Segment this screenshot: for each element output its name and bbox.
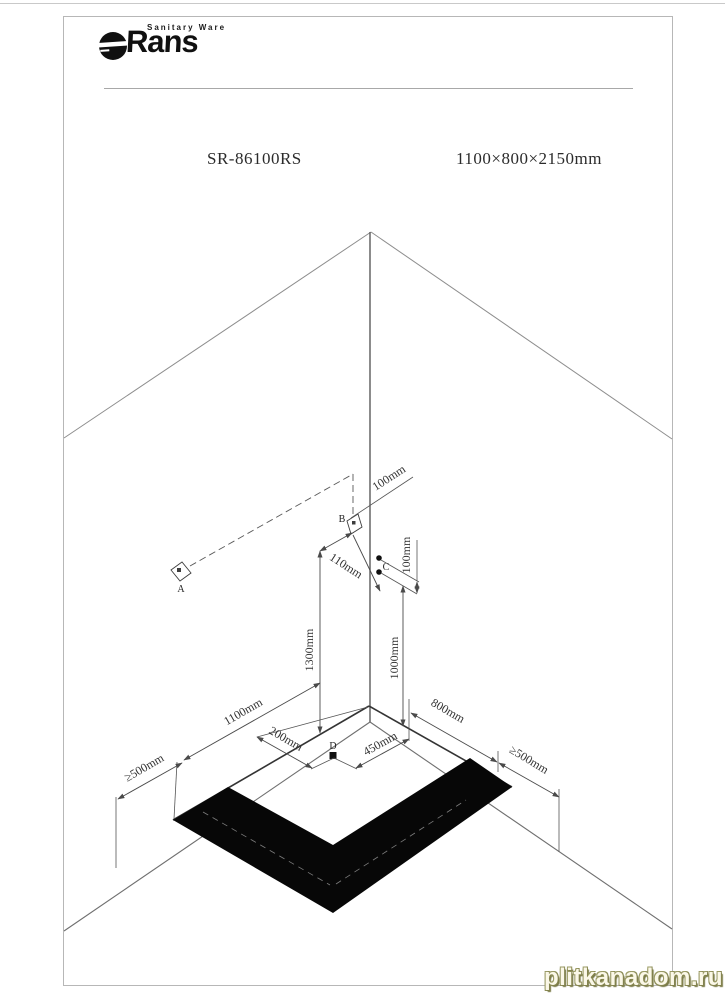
label-point-b: B — [339, 514, 346, 525]
label-point-c: C — [383, 562, 390, 573]
label-point-d: D — [329, 741, 336, 752]
dim-d-offset-left: 200mm — [267, 723, 306, 754]
isometric-installation-diagram: A B 100mm 110mm 1300mm C 100mm — [0, 0, 725, 1000]
site-watermark: plitkanadom.ru — [544, 964, 723, 992]
point-a-socket: A — [171, 474, 353, 595]
point-b-outlet: B 100mm — [339, 461, 413, 534]
dim-floor-left: 1100mm — [221, 695, 265, 729]
dim-d-offset-right: 450mm — [361, 728, 400, 758]
dim-c-spacing: 100mm — [399, 536, 413, 573]
dim-clearance-left: ≥500mm — [122, 750, 167, 784]
dim-b-from-corner: 100mm — [370, 461, 409, 493]
dim-floor-right: 800mm — [429, 695, 468, 726]
point-c-connections: C 100mm 1000mm — [376, 536, 419, 726]
dims-b: 110mm 1300mm — [302, 533, 380, 733]
label-point-a: A — [177, 584, 185, 595]
tray-footprint — [173, 758, 512, 913]
installation-drawing-page: Sanitary Ware Rans SR-86100RS 1100×800×2… — [0, 0, 725, 1000]
dim-c-height: 1000mm — [387, 636, 401, 679]
dim-clearance-right: ≥500mm — [507, 742, 552, 777]
dim-b-offset: 110mm — [327, 550, 366, 582]
dim-b-height: 1300mm — [302, 628, 316, 671]
